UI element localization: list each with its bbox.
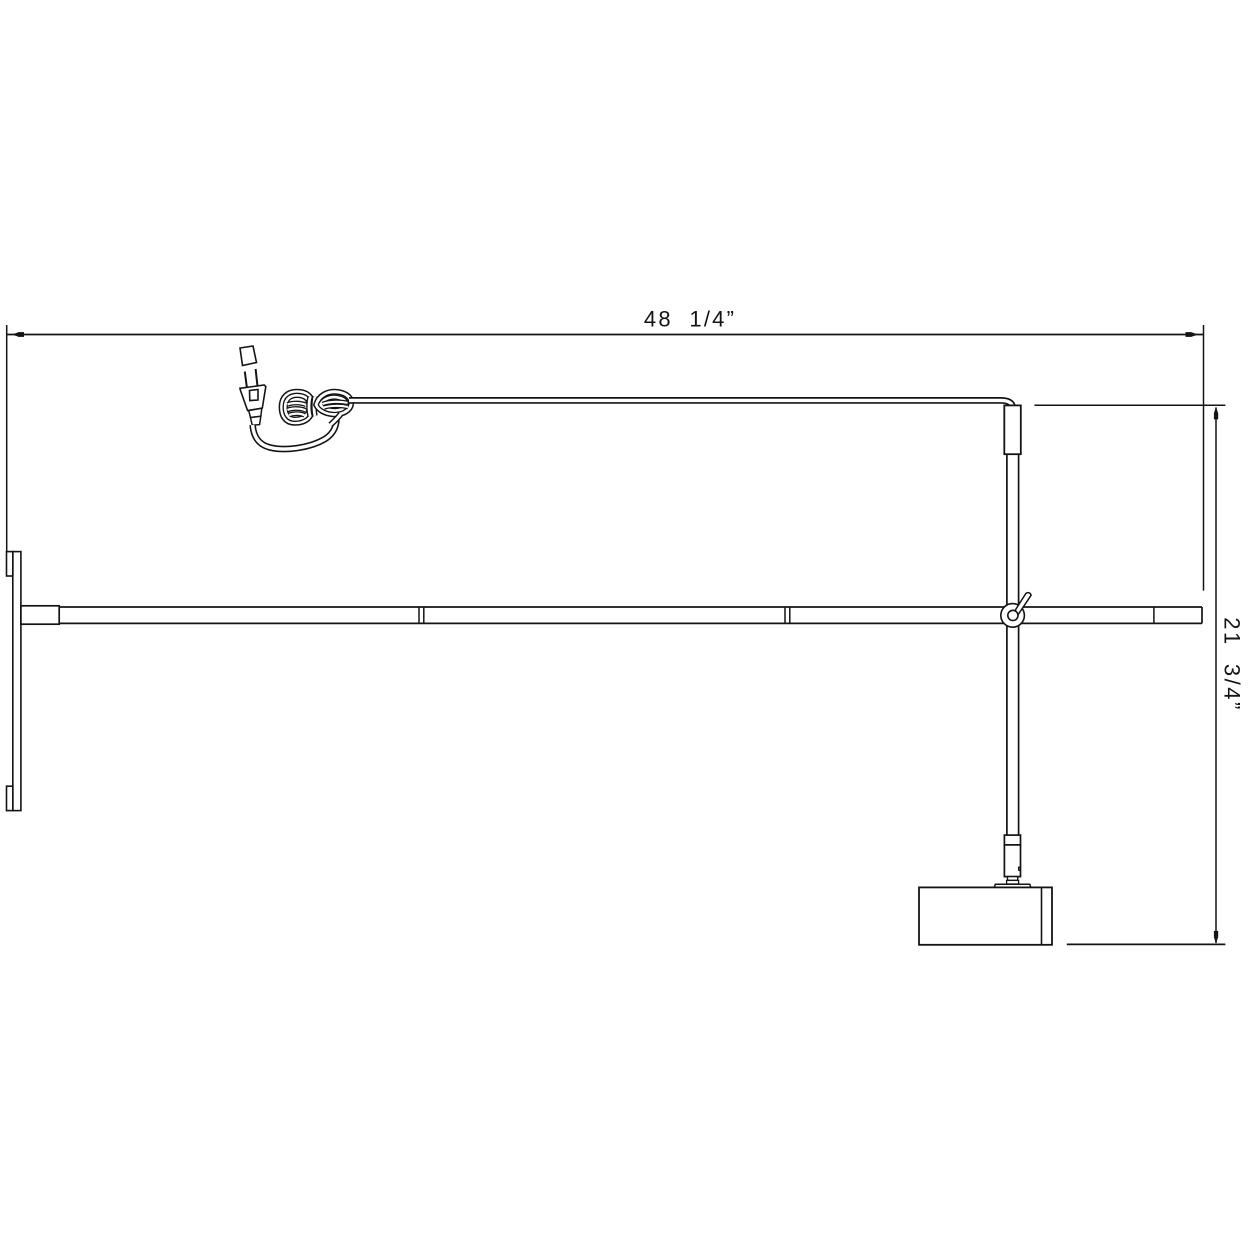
svg-text:21 3/4”: 21 3/4” — [1220, 617, 1245, 712]
svg-text:48 1/4”: 48 1/4” — [644, 307, 736, 332]
